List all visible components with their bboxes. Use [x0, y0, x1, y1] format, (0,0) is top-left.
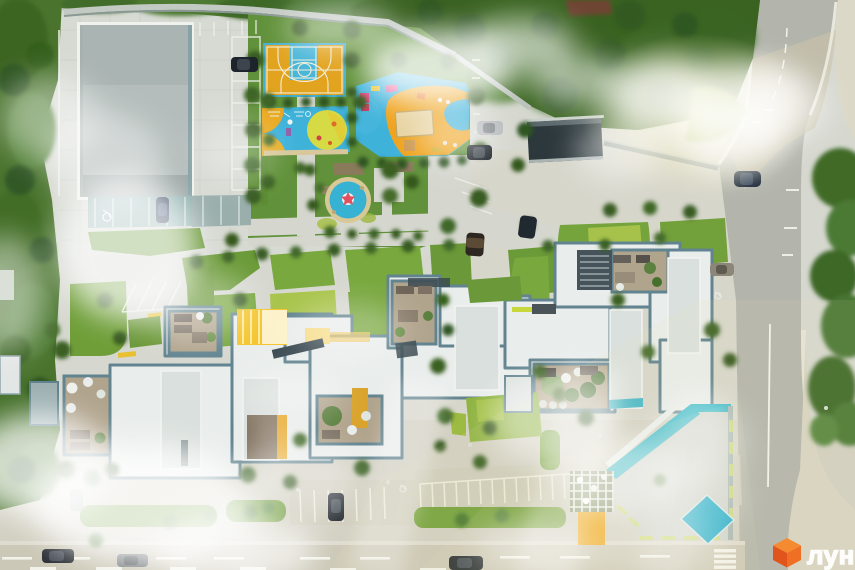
svg-text:лун: лун — [807, 540, 855, 570]
